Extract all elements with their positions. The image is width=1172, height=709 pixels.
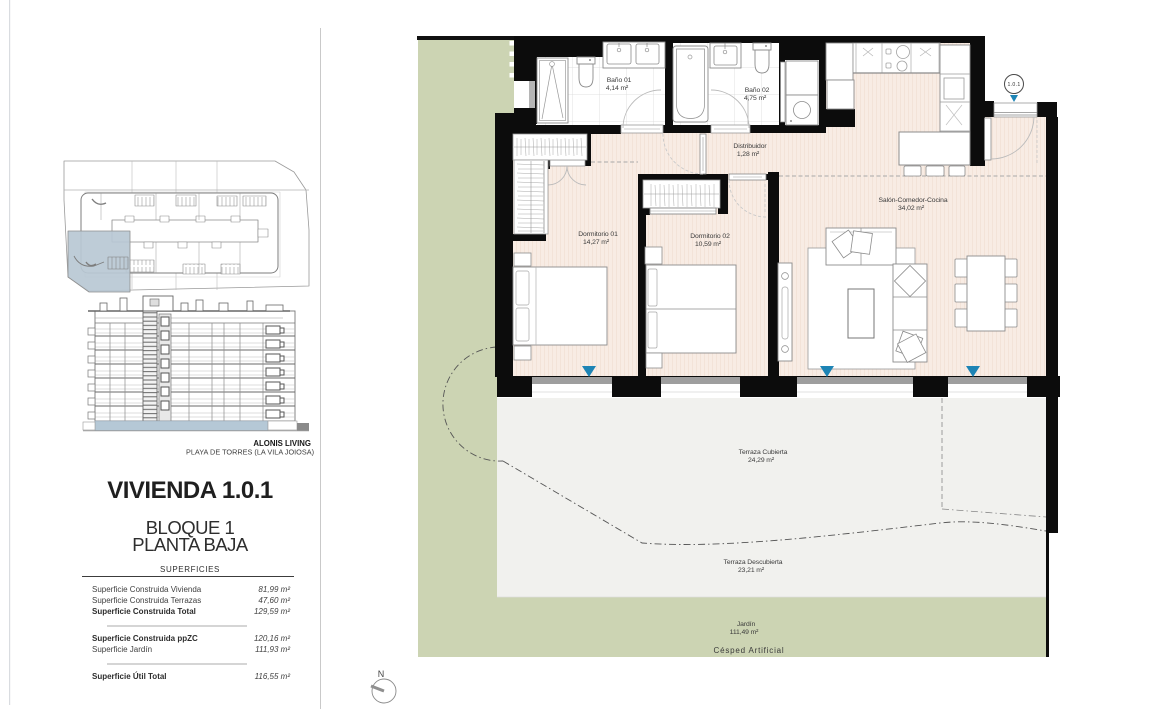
svg-text:Dormitorio 01: Dormitorio 01 (578, 231, 618, 238)
svg-text:23,21 m²: 23,21 m² (738, 567, 765, 574)
svg-text:Baño 01: Baño 01 (607, 77, 632, 84)
svg-text:Baño 02: Baño 02 (745, 87, 770, 94)
svg-text:VIVIENDA 1.0.1: VIVIENDA 1.0.1 (107, 477, 273, 504)
svg-text:N: N (378, 669, 385, 679)
svg-text:Superficie Construida Total: Superficie Construida Total (92, 607, 196, 616)
svg-text:1.0.1: 1.0.1 (1007, 82, 1020, 88)
svg-text:Salón-Comedor-Cocina: Salón-Comedor-Cocina (878, 197, 947, 204)
svg-text:PLAYA DE TORRES (LA VILA JOIOS: PLAYA DE TORRES (LA VILA JOIOSA) (186, 448, 314, 457)
svg-text:4,75 m²: 4,75 m² (744, 95, 767, 102)
svg-text:111,93 m²: 111,93 m² (255, 645, 290, 654)
svg-text:Terraza Cubierta: Terraza Cubierta (739, 449, 788, 456)
svg-text:Superficie Construida Vivienda: Superficie Construida Vivienda (92, 585, 202, 594)
svg-text:Césped Artificial: Césped Artificial (714, 646, 785, 655)
svg-text:47,60 m²: 47,60 m² (258, 596, 290, 605)
svg-text:Superficie Construida Terrazas: Superficie Construida Terrazas (92, 596, 201, 605)
svg-text:111,49 m²: 111,49 m² (730, 629, 760, 636)
svg-text:116,55 m²: 116,55 m² (255, 672, 291, 681)
svg-text:Superficie Útil Total: Superficie Útil Total (92, 672, 167, 681)
svg-text:34,02 m²: 34,02 m² (898, 205, 925, 212)
svg-text:120,16 m²: 120,16 m² (254, 634, 290, 643)
svg-text:Jardín: Jardín (737, 621, 756, 628)
svg-text:1,28 m²: 1,28 m² (737, 151, 760, 158)
svg-text:Distribuidor: Distribuidor (733, 143, 767, 150)
svg-text:PLANTA BAJA: PLANTA BAJA (132, 534, 249, 555)
svg-text:14,27 m²: 14,27 m² (583, 239, 610, 246)
svg-text:Dormitorio 02: Dormitorio 02 (690, 233, 730, 240)
svg-text:SUPERFICIES: SUPERFICIES (160, 565, 220, 574)
svg-text:10,59 m²: 10,59 m² (695, 241, 722, 248)
svg-text:24,29 m²: 24,29 m² (748, 457, 775, 464)
svg-text:81,99 m²: 81,99 m² (258, 585, 290, 594)
svg-text:Terraza Descubierta: Terraza Descubierta (724, 559, 783, 566)
svg-text:Superficie Jardín: Superficie Jardín (92, 645, 152, 654)
svg-text:Superficie Construida ppZC: Superficie Construida ppZC (92, 634, 198, 643)
svg-text:4,14 m²: 4,14 m² (606, 85, 629, 92)
svg-text:129,59 m²: 129,59 m² (254, 607, 290, 616)
